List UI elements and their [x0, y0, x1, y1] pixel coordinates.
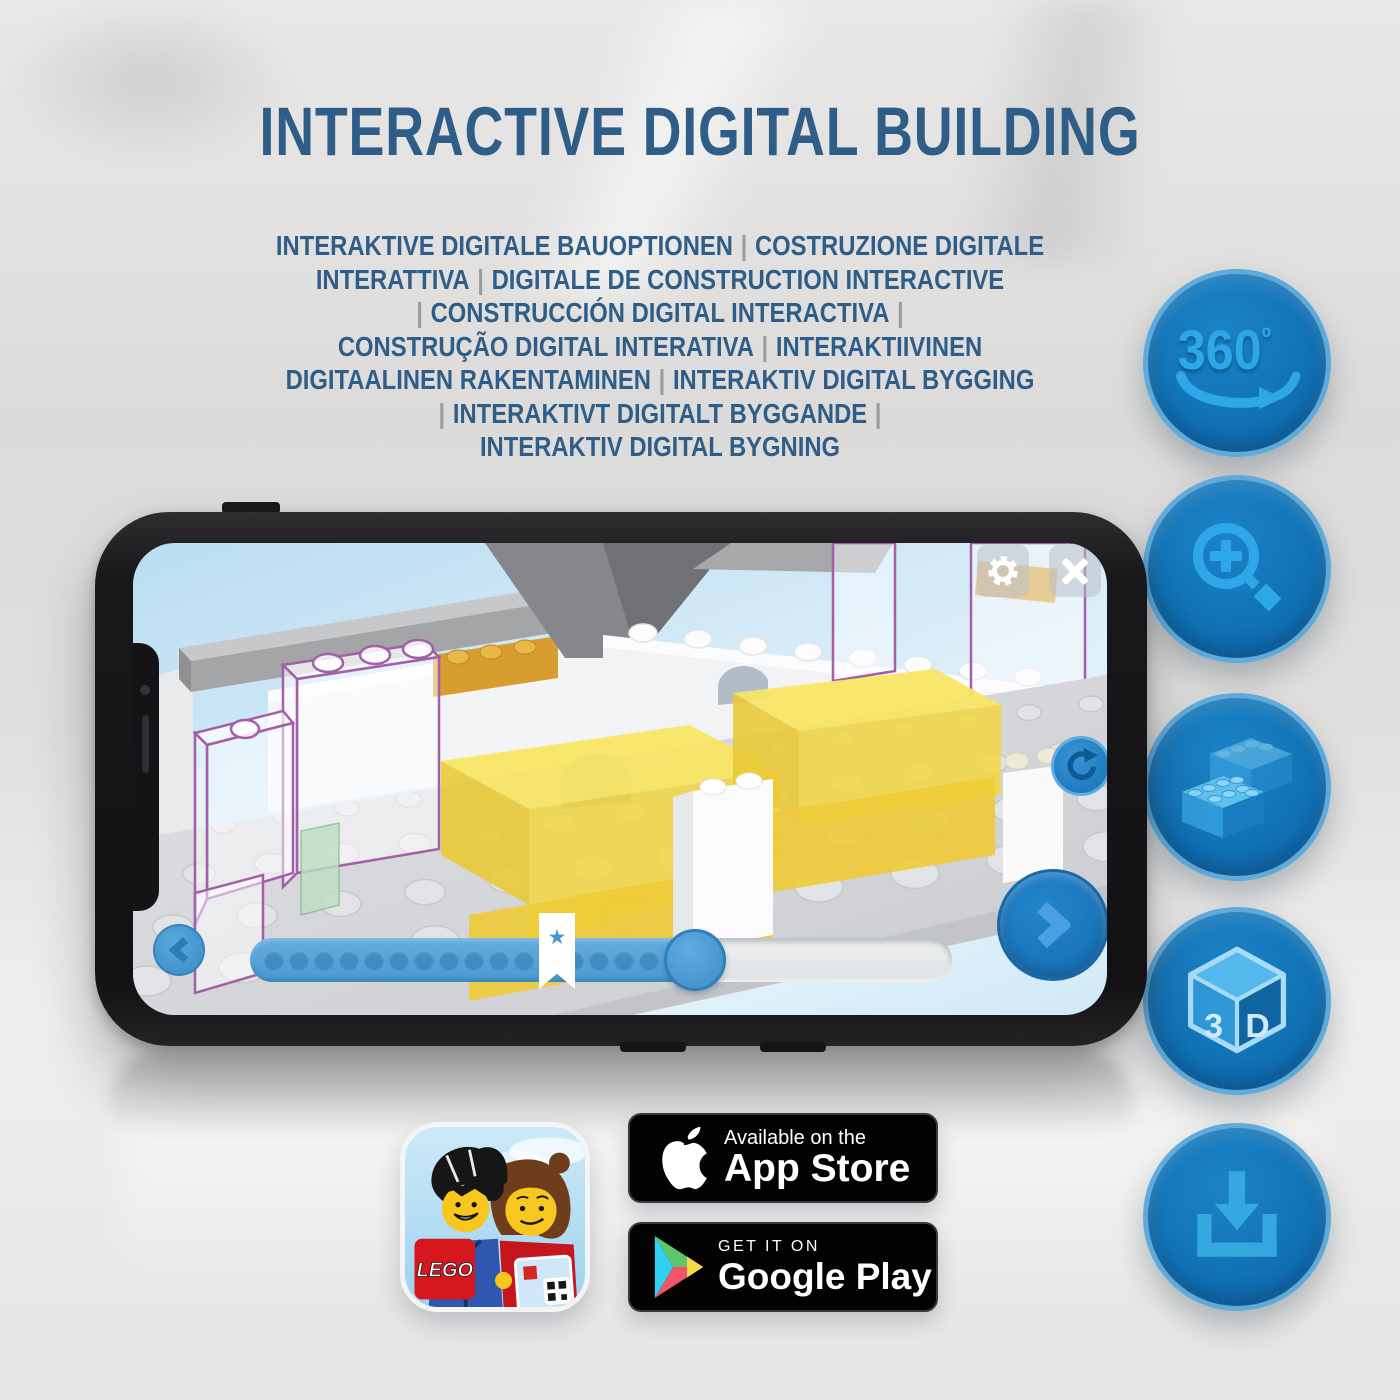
separator: |	[733, 230, 755, 261]
speaker-slot	[142, 715, 149, 773]
close-icon	[1049, 545, 1101, 597]
multilingual-subtitle: INTERAKTIVE DIGITALE BAUOPTIONEN|COSTRUZ…	[140, 229, 1180, 464]
lego-minifigures-artwork: LEGO	[405, 1127, 585, 1307]
separator: |	[431, 398, 453, 429]
progress-dot	[589, 950, 609, 970]
rotate-reset-icon	[1063, 748, 1099, 784]
progress-slider[interactable]: ★	[250, 938, 952, 982]
progress-dot	[289, 950, 309, 970]
subtitle-line: |CONSTRUCCIÓN DIGITAL INTERACTIVA|	[218, 296, 1102, 330]
app-store-badge[interactable]: Available on the App Store	[628, 1113, 938, 1203]
progress-dot	[614, 950, 634, 970]
subtitle-line: INTERATTIVA|DIGITALE DE CONSTRUCTION INT…	[218, 263, 1102, 297]
phone: ★	[95, 512, 1147, 1046]
progress-dot	[389, 950, 409, 970]
google-play-name: Google Play	[718, 1257, 932, 1297]
lego-logo: LEGO	[417, 1260, 474, 1282]
progress-dot	[514, 950, 534, 970]
separator: |	[470, 264, 492, 295]
cube-face-d: D	[1245, 1007, 1269, 1045]
settings-button[interactable]	[977, 545, 1029, 597]
progress-dot	[464, 950, 484, 970]
subtitle-line: INTERAKTIVE DIGITALE BAUOPTIONEN|COSTRUZ…	[218, 229, 1102, 263]
magnifier-plus-icon	[1181, 513, 1293, 625]
progress-dot	[489, 950, 509, 970]
camera-icon	[140, 685, 150, 695]
feature-zoom	[1143, 475, 1331, 663]
feature-download	[1143, 1123, 1331, 1311]
progress-dot	[364, 950, 384, 970]
progress-dot	[639, 950, 659, 970]
rotate-reset-button[interactable]	[1051, 736, 1107, 796]
separator: |	[651, 364, 673, 395]
apple-icon	[650, 1125, 716, 1191]
download-icon	[1181, 1161, 1293, 1273]
promo-image: INTERACTIVE DIGITAL BUILDING INTERAKTIVE…	[0, 0, 1400, 1400]
separator: |	[754, 331, 776, 362]
subtitle-line: CONSTRUÇÃO DIGITAL INTERATIVA|INTERAKTII…	[218, 330, 1102, 364]
app-store-tagline: Available on the	[724, 1127, 910, 1149]
progress-dot	[314, 950, 334, 970]
separator: |	[867, 398, 889, 429]
bookmark-star-icon: ★	[548, 925, 567, 949]
progress-dot	[439, 950, 459, 970]
app-store-name: App Store	[724, 1149, 910, 1189]
separator: |	[889, 297, 911, 328]
subtitle-line: |INTERAKTIVT DIGITALT BYGGANDE|	[218, 397, 1102, 431]
separator: |	[409, 297, 431, 328]
cube-face-3: 3	[1204, 1007, 1223, 1045]
progress-dot	[339, 950, 359, 970]
previous-step-icon	[169, 936, 189, 964]
progress-dot	[264, 950, 284, 970]
subtitle-line: INTERAKTIV DIGITAL BYGNING	[218, 430, 1102, 464]
lego-app-icon[interactable]: LEGO	[400, 1122, 590, 1312]
next-step-button[interactable]	[997, 869, 1107, 981]
phone-reflection	[110, 1052, 1132, 1148]
previous-step-button[interactable]	[153, 924, 205, 976]
progress-dot	[414, 950, 434, 970]
feature-360-rotation: 360º	[1143, 269, 1331, 457]
subtitle-line: DIGITAALINEN RAKENTAMINEN|INTERAKTIV DIG…	[218, 363, 1102, 397]
google-play-badge[interactable]: GET IT ON Google Play	[628, 1222, 938, 1312]
google-play-icon	[652, 1236, 706, 1298]
lego-brick-icon	[1176, 726, 1298, 848]
feature-brick	[1143, 693, 1331, 881]
phone-notch	[133, 643, 159, 911]
gear-icon	[981, 549, 1025, 593]
3d-cube-icon: 3 D	[1179, 943, 1295, 1059]
next-step-icon	[1036, 901, 1070, 949]
feature-360-label: 360º	[1178, 313, 1297, 375]
feature-3d-view: 3 D	[1143, 907, 1331, 1095]
progress-thumb[interactable]	[664, 929, 726, 991]
progress-fill	[250, 938, 705, 982]
app-screen: ★	[133, 543, 1107, 1015]
google-play-tagline: GET IT ON	[718, 1237, 932, 1257]
phone-side-button	[760, 1042, 826, 1052]
page-title: INTERACTIVE DIGITAL BUILDING	[154, 92, 1246, 171]
phone-side-button	[620, 1042, 686, 1052]
close-button[interactable]	[1049, 545, 1101, 597]
